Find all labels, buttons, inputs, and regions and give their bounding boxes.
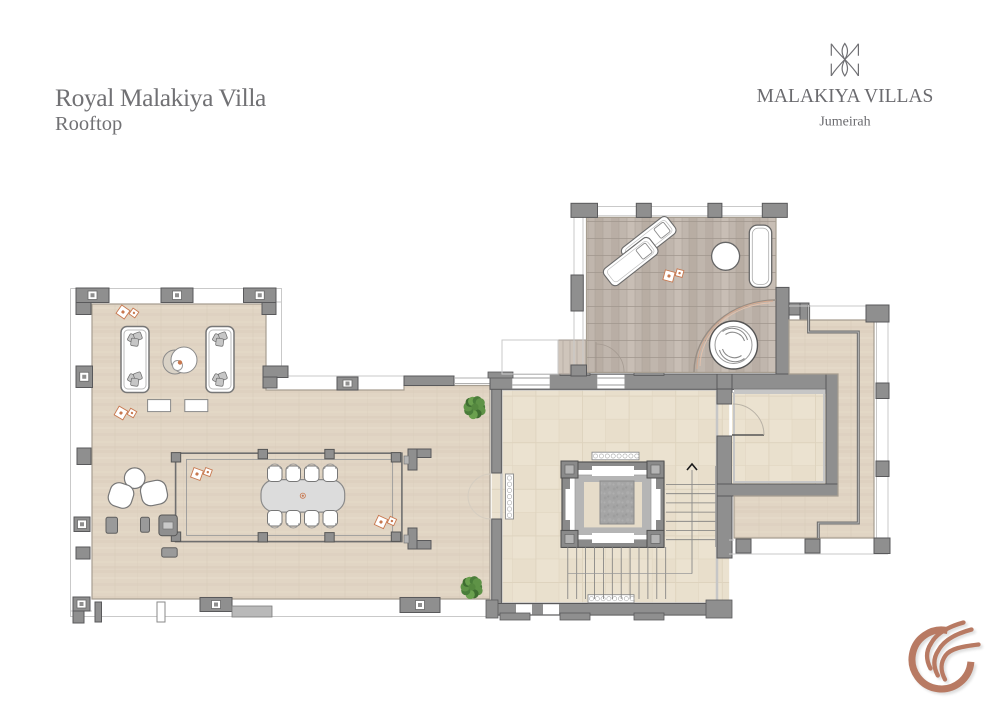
svg-text:Jumeirah: Jumeirah xyxy=(819,115,870,130)
svg-text:Rooftop: Rooftop xyxy=(55,113,122,135)
svg-text:MALAKIYA VILLAS: MALAKIYA VILLAS xyxy=(757,86,934,107)
svg-text:Royal Malakiya Villa: Royal Malakiya Villa xyxy=(55,83,266,112)
